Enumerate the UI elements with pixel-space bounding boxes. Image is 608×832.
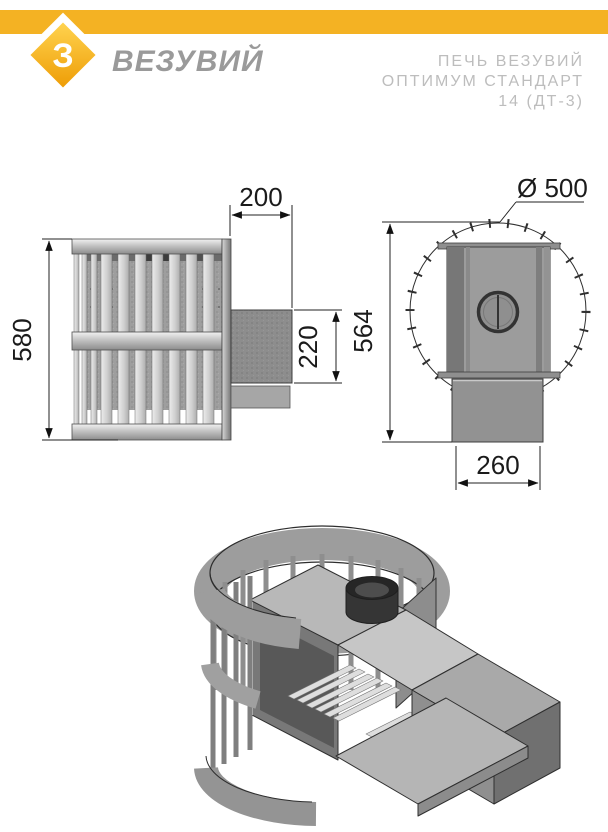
product-card: { "header": { "accent_color": "#F4B223",…: [0, 0, 608, 832]
dim-220-label: 220: [293, 325, 323, 368]
iso-chimney: [346, 577, 398, 624]
side-view-bottom-flange: [438, 372, 560, 378]
dim-diameter-label: Ø 500: [517, 173, 588, 203]
dim-200-label: 200: [239, 182, 282, 212]
front-view-drawing: 580 200 220: [7, 182, 342, 440]
dim-diameter: [500, 202, 584, 222]
front-view-bottom-ring: [72, 424, 222, 440]
front-view-duct-base: [231, 386, 290, 408]
technical-drawing: 580 200 220: [0, 0, 608, 832]
front-view-middle-ring: [72, 332, 222, 350]
dim-564-label: 564: [348, 309, 378, 352]
front-view-top-ring: [72, 239, 222, 254]
side-view-base-duct: [452, 379, 543, 442]
iso-bottom-ring: [206, 768, 316, 814]
dim-580-label: 580: [7, 318, 37, 361]
dim-260-label: 260: [476, 450, 519, 480]
front-view-right-edge: [222, 239, 231, 440]
isometric-view-drawing: [206, 526, 560, 816]
dim-200: [230, 205, 292, 308]
front-view-fuel-duct: [231, 310, 292, 383]
side-view-drawing: 564 Ø 500 260: [348, 173, 588, 490]
